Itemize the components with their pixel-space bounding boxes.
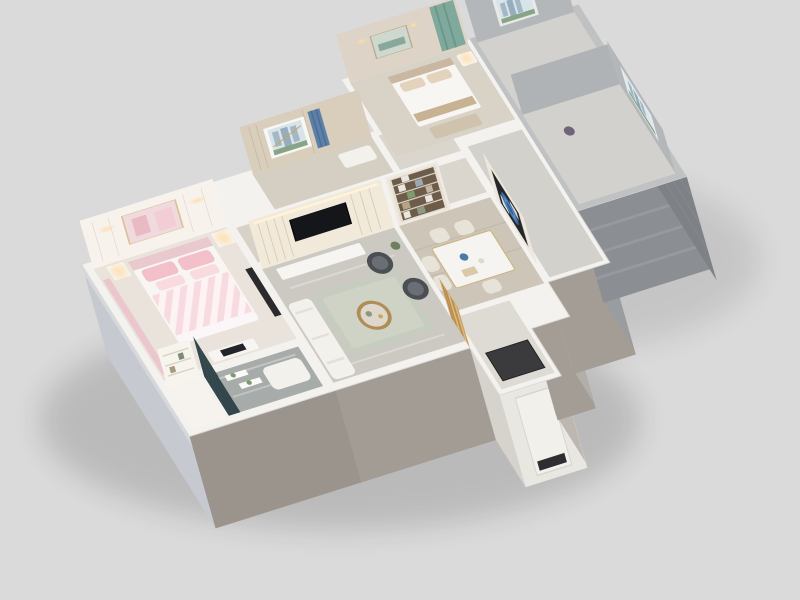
- render-stage: [0, 0, 800, 600]
- floorplan-3d-render: [0, 0, 800, 600]
